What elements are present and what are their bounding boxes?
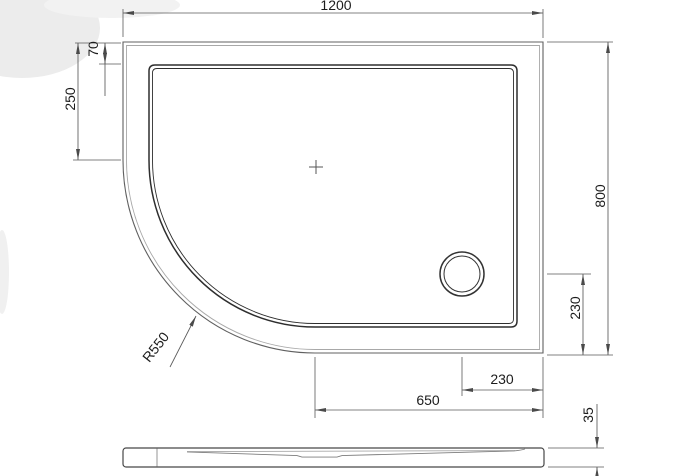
plan-view (123, 42, 543, 353)
tray-outer-edge (123, 42, 543, 353)
side-view (123, 448, 544, 467)
technical-drawing-sheet: 1200 70 250 800 230 230 650 R550 35 (0, 0, 675, 476)
label-tray-height: 35 (580, 407, 596, 423)
label-rim-width: 70 (85, 41, 101, 57)
label-straight-edge: 650 (416, 392, 440, 408)
shower-tray-drawing: 1200 70 250 800 230 230 650 R550 35 (0, 0, 675, 476)
label-overall-depth: 800 (592, 184, 608, 208)
label-overall-width: 1200 (320, 0, 351, 13)
label-corner-radius: R550 (139, 329, 172, 365)
label-radius-start: 250 (62, 87, 78, 111)
label-drain-bottom: 230 (567, 296, 583, 320)
label-drain-right: 230 (490, 371, 514, 387)
leader-corner-radius (170, 316, 196, 367)
